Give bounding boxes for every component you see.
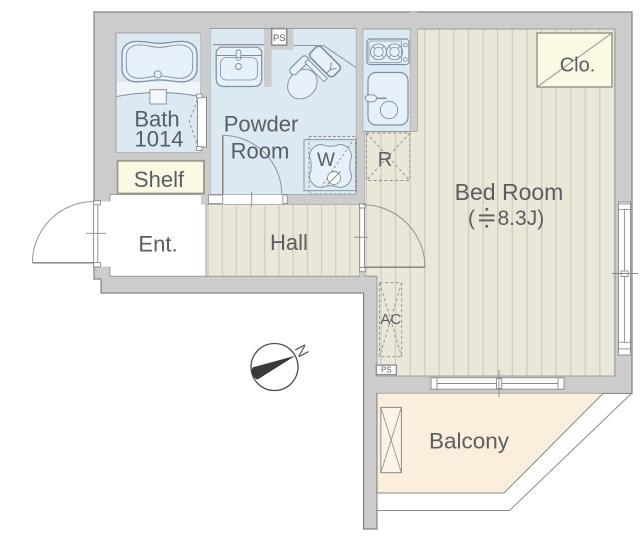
svg-text:8.3J): 8.3J) — [498, 207, 545, 230]
svg-text:Clo.: Clo. — [560, 55, 596, 77]
svg-text:W: W — [317, 150, 335, 171]
svg-text:Balcony: Balcony — [429, 429, 510, 454]
svg-text:Hall: Hall — [270, 230, 308, 255]
svg-text:Bed Room: Bed Room — [455, 179, 564, 205]
svg-text:AC: AC — [380, 311, 401, 328]
svg-text:PS: PS — [273, 33, 286, 44]
svg-text:Room: Room — [231, 139, 290, 164]
svg-text:(: ( — [468, 207, 475, 230]
svg-text:PS: PS — [381, 366, 392, 375]
svg-text:1014: 1014 — [135, 127, 184, 152]
svg-text:Powder: Powder — [224, 112, 299, 137]
svg-text:R: R — [378, 149, 392, 171]
svg-text:Ent.: Ent. — [138, 232, 177, 257]
svg-text:Shelf: Shelf — [134, 167, 185, 192]
